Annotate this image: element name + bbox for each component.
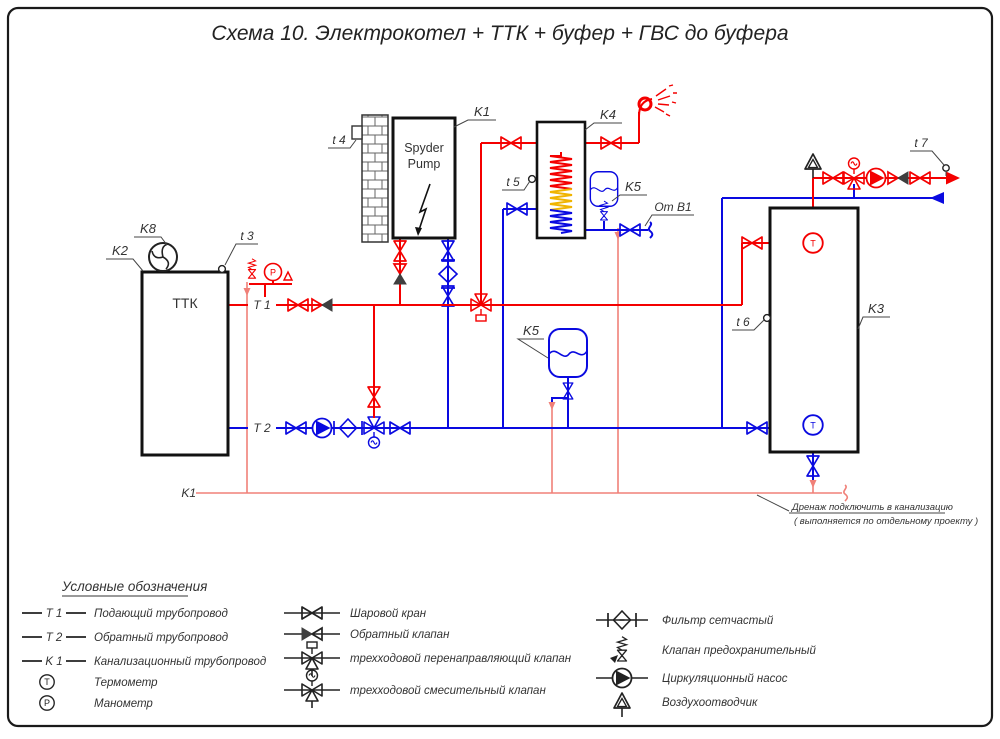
drain-note-line2: ( выполняется по отдельному проекту ) <box>794 516 978 527</box>
expansion-vessel-heating <box>549 329 587 377</box>
pressure-gauge: P <box>265 264 282 281</box>
flue-sensor <box>352 126 362 139</box>
legend-pipe-k1: K 1 Канализационный трубопровод <box>22 656 266 668</box>
thermometer-top: T <box>803 233 823 253</box>
boiler-brand-line1: Spyder <box>404 141 444 155</box>
svg-text:Подающий трубопровод: Подающий трубопровод <box>94 608 228 620</box>
tag-k3: K3 <box>868 301 885 316</box>
schematic-canvas: Схема 10. Электрокотел + ТТК + буфер + Г… <box>0 0 1000 734</box>
svg-text:P: P <box>270 267 276 277</box>
label-t5: t 5 <box>506 175 520 189</box>
drawing-title: Схема 10. Электрокотел + ТТК + буфер + Г… <box>211 22 788 45</box>
svg-text:Термометр: Термометр <box>94 677 158 689</box>
svg-text:Шаровой кран: Шаровой кран <box>350 608 427 620</box>
tag-k2: K2 <box>112 243 129 258</box>
svg-text:трехходовой смесительный клапа: трехходовой смесительный клапан <box>350 685 546 697</box>
svg-text:Циркуляционный насос: Циркуляционный насос <box>662 673 788 685</box>
drain-note-line1: Дренаж подключить в канализацию <box>791 502 953 513</box>
tag-k4: K4 <box>600 107 616 122</box>
svg-text:Воздухоотводчик: Воздухоотводчик <box>662 697 758 709</box>
drawing-sheet: Схема 10. Электрокотел + ТТК + буфер + Г… <box>0 0 1000 734</box>
boiler-brand-line2: Pump <box>408 157 441 171</box>
expansion-vessel-dhw <box>590 172 617 207</box>
svg-text:T 1: T 1 <box>46 608 63 620</box>
ttk-boiler: ТТК <box>142 243 228 455</box>
svg-text:Фильтр сетчастый: Фильтр сетчастый <box>662 615 774 627</box>
dhw-tank <box>529 122 585 238</box>
circulation-pump <box>867 169 886 188</box>
tag-k5-heating: K5 <box>523 323 540 338</box>
sensor-t3-probe <box>219 266 226 273</box>
label-t6: t 6 <box>736 315 750 329</box>
flue-fan <box>149 243 177 271</box>
sewer-pipe-label: K1 <box>181 486 196 500</box>
label-t4: t 4 <box>332 133 346 147</box>
circulation-pump <box>313 419 332 438</box>
sensor-t7-probe <box>943 165 949 171</box>
label-t7: t 7 <box>914 136 929 150</box>
label-cold-water: От В1 <box>654 200 691 214</box>
tag-k1: K1 <box>474 104 490 119</box>
svg-text:Обратный трубопровод: Обратный трубопровод <box>94 632 228 644</box>
svg-text:T: T <box>810 239 816 249</box>
thermometer-bottom: T <box>803 415 823 435</box>
buffer-tank: T T <box>764 208 858 452</box>
supply-pipe-label: T 1 <box>253 298 270 312</box>
return-pipe-label: T 2 <box>253 421 271 435</box>
ttk-label: ТТК <box>172 295 198 311</box>
svg-text:Клапан предохранительный: Клапан предохранительный <box>662 645 816 657</box>
electric-boiler: Spyder Pump <box>393 118 455 238</box>
svg-text:T 2: T 2 <box>46 632 63 644</box>
svg-text:Манометр: Манометр <box>94 698 153 710</box>
legend-pipe-t2: T 2 Обратный трубопровод <box>22 632 228 644</box>
label-t3: t 3 <box>240 229 254 243</box>
legend-pipe-t1: T 1 Подающий трубопровод <box>22 608 228 620</box>
svg-text:трехходовой перенаправляющий к: трехходовой перенаправляющий клапан <box>350 653 572 665</box>
legend-heading: Условные обозначения <box>61 579 207 594</box>
svg-text:P: P <box>44 698 50 708</box>
svg-text:T: T <box>44 677 50 687</box>
svg-text:T: T <box>810 421 816 431</box>
sensor-t6-probe <box>764 315 771 322</box>
svg-text:K 1: K 1 <box>45 656 62 668</box>
svg-text:Канализационный трубопровод: Канализационный трубопровод <box>94 656 266 668</box>
tag-k5-dhw: K5 <box>625 179 642 194</box>
tag-k8: K8 <box>140 221 157 236</box>
svg-text:Обратный клапан: Обратный клапан <box>350 629 450 641</box>
